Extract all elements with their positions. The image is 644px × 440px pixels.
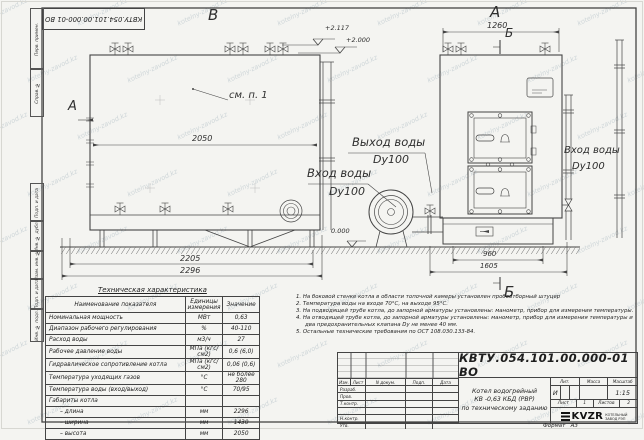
param-value: 70/95 <box>222 385 259 395</box>
border-cell-podp-data-1: Подп. и дата <box>30 183 44 222</box>
lit-label: Лит. <box>551 378 580 385</box>
sheet-row: Лист 1 Листов 2 <box>551 400 637 408</box>
border-label: Подп. и дата <box>35 188 40 218</box>
format-word: Формат <box>543 423 565 429</box>
border-label: Подп. и дата <box>35 279 40 309</box>
param-units: м3/ч <box>185 335 223 345</box>
inlet-right-dn-label: Dy100 <box>572 162 605 172</box>
inlet-mid-label: Вход воды <box>307 168 371 180</box>
note-line: 4. На отводящей трубе котла, до запорной… <box>296 315 638 329</box>
title-block-right: Лит. Масса Масштаб И 1:15 Лист 1 Листов … <box>550 378 637 423</box>
table-row: Температура уходящих газов°Сне более 280 <box>46 371 259 384</box>
tech-table-header-row: Наименование показателя Единицы измерени… <box>46 297 259 312</box>
param-units: мм <box>185 429 223 439</box>
sig-row: Н.контр. <box>338 414 458 421</box>
view-b-label: В <box>208 8 218 23</box>
mass-value <box>580 386 609 399</box>
sig-row: Разраб. <box>338 385 458 392</box>
view-a-drawing <box>440 40 625 244</box>
view-a-label: А <box>490 5 500 20</box>
revision-header-row: Изм. Лист N докум. Подп. Дата <box>338 378 458 385</box>
product-title: Котел водогрейный КВ -0,63 КБД (РВР) по … <box>458 378 550 423</box>
border-cell-podp-data-2: Подп. и дата <box>30 278 44 310</box>
table-row: Диапазон рабочего регулирования%40-110 <box>46 323 259 334</box>
table-row: Рабочее давление водыМПа (кгс/см2)0,6 (6… <box>46 345 259 358</box>
param-units: °С <box>185 385 223 395</box>
table-row: – длинамм2296 <box>46 406 259 417</box>
product-title-line: Котел водогрейный <box>472 388 537 397</box>
border-cell-perv-primen: Перв. примен. <box>30 8 44 70</box>
tech-table-title: Техническая характеристика <box>98 286 207 294</box>
border-cell-inv-podl: Инв. № подл. <box>30 308 44 342</box>
param-value: 0,63 <box>222 313 259 323</box>
tech-table-header: Значение <box>222 297 259 312</box>
signature-rows: Разраб. Пров. Т.контр. Н.контр. Утв. <box>338 385 458 423</box>
param-units: МПа (кгс/см2) <box>185 359 223 371</box>
revision-grid <box>338 353 458 378</box>
param-name: Температура уходящих газов <box>46 372 185 384</box>
dim-2296: 2296 <box>180 267 200 275</box>
note-line: 5. Остальные технические требования по О… <box>296 329 638 336</box>
table-row: Номинальная мощностьМВт0,63 <box>46 312 259 323</box>
technical-notes: 1. На боковой стенке котла в области топ… <box>296 294 638 335</box>
dim-960: 960 <box>483 251 496 258</box>
tech-table-header: Единицы измерения <box>185 297 223 312</box>
param-name: – высота <box>46 429 185 439</box>
logo-subtitle: ЗАВОД РЭП <box>605 417 627 421</box>
param-name: – длина <box>46 407 185 417</box>
dim-2050: 2050 <box>192 135 212 143</box>
param-units: МПа (кгс/см2) <box>185 346 223 358</box>
lit-value: И <box>551 386 561 399</box>
param-units: °С <box>185 372 223 384</box>
title-block: КВТУ.054.101.00.000-01 ВО Изм. Лист N до… <box>337 352 638 424</box>
table-row: – ширинамм1430 <box>46 417 259 428</box>
dim-1605: 1605 <box>480 263 498 270</box>
format-value: А3 <box>571 423 578 429</box>
view-arrow-a-label: А <box>68 100 77 113</box>
elevation-2000: +2.000 <box>346 37 370 44</box>
param-units: мм <box>185 407 223 417</box>
outlet-dn-label: Dy100 <box>373 154 409 165</box>
table-row: Температура воды (вход/выход)°С70/95 <box>46 384 259 395</box>
param-name: Гидравлическое сопротивление котла <box>46 359 185 371</box>
elevation-2117: +2.117 <box>325 25 349 32</box>
format-label: Формат А3 <box>543 423 578 429</box>
sig-label: Т.контр. <box>338 401 366 407</box>
top-left-designation-box: КВТУ.054.101.00.000-01 ВО <box>42 8 145 30</box>
sheets-label: Листов <box>594 400 621 407</box>
outlet-label: Выход воды <box>352 137 425 149</box>
kvzr-logo-icon <box>561 412 570 422</box>
border-label: Перв. примен. <box>35 23 40 56</box>
note-line: 3. На подводящей трубе котла, до запорно… <box>296 308 638 315</box>
top-left-designation: КВТУ.054.101.00.000-01 ВО <box>45 15 142 23</box>
blower-drawing <box>369 190 443 247</box>
sig-label: Пров. <box>338 393 366 399</box>
drawing-sheet: kotelny-zavod.kzkotelny-zavod.kzkotelny-… <box>0 0 644 430</box>
param-name: Номинальная мощность <box>46 313 185 323</box>
param-name: – ширина <box>46 418 185 428</box>
inlet-mid-dn-label: Dy100 <box>329 186 365 197</box>
sig-row <box>338 407 458 414</box>
sheets-value: 2 <box>620 400 637 407</box>
param-units: % <box>185 324 223 334</box>
product-title-line: по техническому заданию <box>461 405 547 414</box>
document-designation: КВТУ.054.101.00.000-01 ВО <box>458 353 637 378</box>
tech-table: Наименование показателя Единицы измерени… <box>45 296 260 440</box>
param-value: 27 <box>222 335 259 345</box>
border-label: Справ. № <box>35 82 40 104</box>
mass-label: Масса <box>580 378 609 385</box>
sig-row: Утв. <box>338 422 458 429</box>
border-cell-vzam-inv: Взам. инв. № <box>30 250 44 280</box>
table-row: Расход водым3/ч27 <box>46 334 259 345</box>
table-row: Габариты котла <box>46 395 259 406</box>
sig-row: Т.контр. <box>338 400 458 407</box>
param-value: 0,06 (0,6) <box>222 359 259 371</box>
tech-table-header: Наименование показателя <box>46 297 185 312</box>
param-value: 1430 <box>222 418 259 428</box>
border-cell-sprav: Справ. № <box>30 68 44 117</box>
dim-2205: 2205 <box>180 255 200 263</box>
param-value <box>222 396 259 406</box>
param-name: Рабочее давление воды <box>46 346 185 358</box>
param-name: Расход воды <box>46 335 185 345</box>
sig-row: Пров. <box>338 392 458 399</box>
param-value: 2050 <box>222 429 259 439</box>
see-note-callout: см. п. 1 <box>229 91 268 101</box>
param-value: 0,6 (6,0) <box>222 346 259 358</box>
dim-1260: 1260 <box>487 22 507 30</box>
param-value: не более 280 <box>222 372 259 384</box>
param-name: Габариты котла <box>46 396 185 406</box>
param-units: мм <box>185 418 223 428</box>
param-value: 40-110 <box>222 324 259 334</box>
param-name: Температура воды (вход/выход) <box>46 385 185 395</box>
product-title-line: КВ -0,63 КБД (РВР) <box>474 396 535 405</box>
border-cell-inv-dubl: Инв. № дубл. <box>30 220 44 252</box>
border-label: Взам. инв. № <box>35 250 40 280</box>
lit-mass-scale-values: И 1:15 <box>551 386 637 400</box>
param-units <box>185 396 223 406</box>
scale-value: 1:15 <box>608 386 637 399</box>
sheet-label: Лист <box>551 400 577 407</box>
param-name: Диапазон рабочего регулирования <box>46 324 185 334</box>
sheet-value: 1 <box>577 400 594 407</box>
sig-label <box>338 408 366 414</box>
border-label: Инв. № дубл. <box>35 221 40 251</box>
note-line: 2. Температура воды на входе 70°С, на вы… <box>296 301 638 308</box>
lit-mass-scale-header: Лит. Масса Масштаб <box>551 378 637 386</box>
elevation-zero: 0.000 <box>331 228 350 235</box>
border-label: Инв. № подл. <box>35 310 40 341</box>
sig-label: Утв. <box>338 423 366 429</box>
sig-label: Разраб. <box>338 386 366 392</box>
table-row: Гидравлическое сопротивление котлаМПа (к… <box>46 358 259 371</box>
scale-label: Масштаб <box>608 378 637 385</box>
kvzr-logo-text: KVZR <box>572 411 604 422</box>
inlet-right-label: Вход воды <box>564 146 620 156</box>
param-value: 2296 <box>222 407 259 417</box>
sig-label: Н.контр. <box>338 415 366 421</box>
ground-hatch <box>60 247 580 254</box>
param-units: МВт <box>185 313 223 323</box>
note-line: 1. На боковой стенке котла в области топ… <box>296 294 638 301</box>
